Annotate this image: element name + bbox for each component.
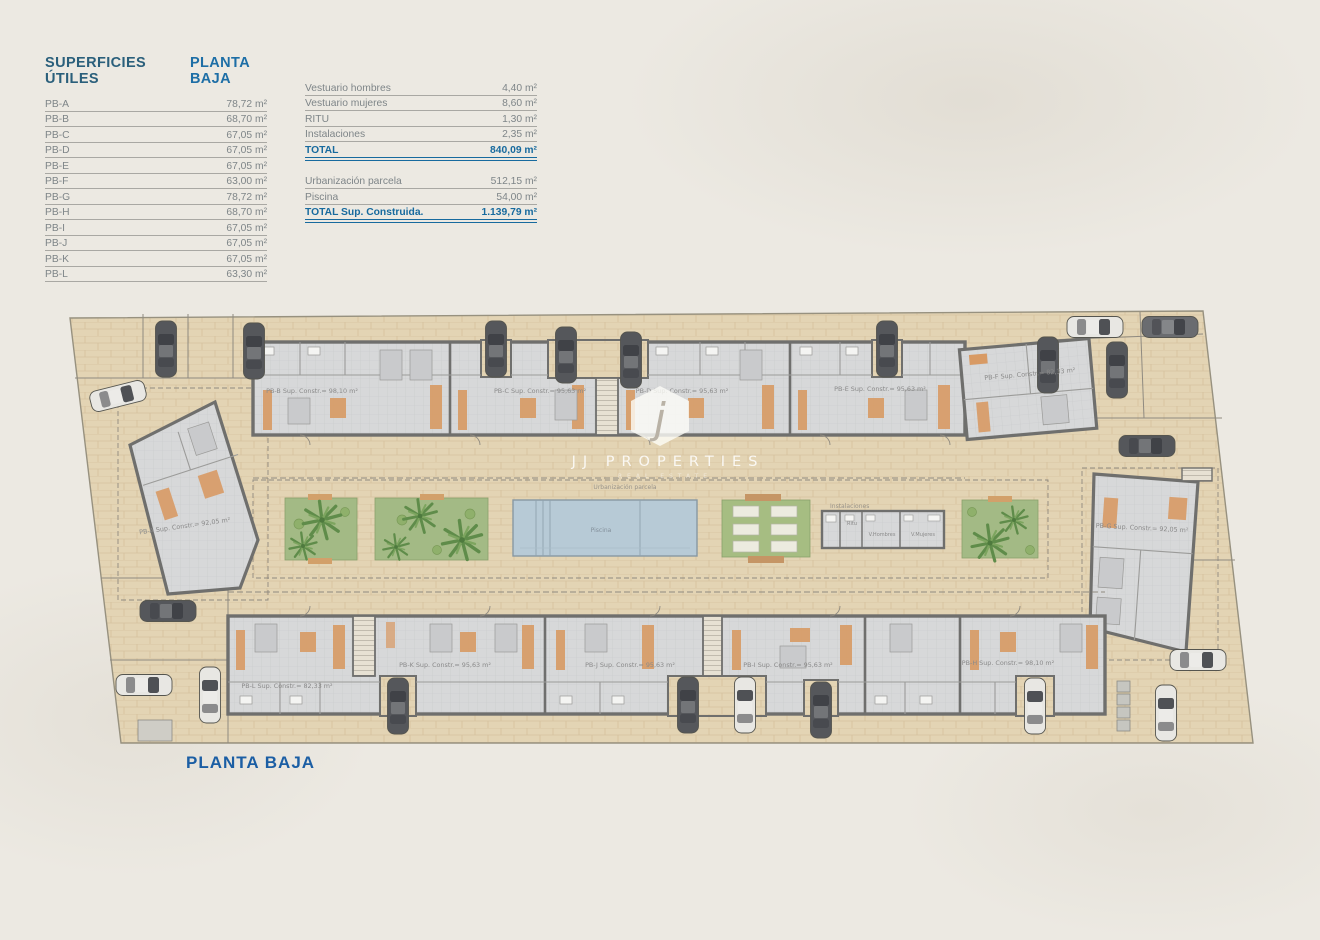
table-row: PB-E67,05 m² <box>45 158 267 174</box>
unit-label-pbh: PB-H Sup. Constr.= 98,10 m² <box>962 659 1055 667</box>
row-label: PB-K <box>45 254 69 265</box>
row-label: PB-E <box>45 161 69 172</box>
unit-label-pbk: PB-K Sup. Constr.= 95,63 m² <box>399 661 491 669</box>
row-label: PB-F <box>45 176 68 187</box>
total-value: 1.139,79 m² <box>481 207 537 218</box>
row-label: Urbanización parcela <box>305 176 402 187</box>
watermark-name: JJ PROPERTIES <box>571 454 765 470</box>
row-value: 67,05 m² <box>226 161 267 172</box>
row-label: Instalaciones <box>305 129 365 140</box>
table-row: PB-B68,70 m² <box>45 112 267 128</box>
table-row: PB-J67,05 m² <box>45 236 267 252</box>
row-value: 67,05 m² <box>226 238 267 249</box>
surfaces-table-title: SUPERFICIES ÚTILES PLANTA BAJA <box>45 55 267 87</box>
table-row: Urbanización parcela512,15 m² <box>305 174 537 190</box>
unit-label-pbj: PB-J Sup. Constr.= 95,63 m² <box>585 661 675 669</box>
row-value: 63,30 m² <box>226 269 267 280</box>
table-row: PB-C67,05 m² <box>45 127 267 143</box>
label-instalaciones: Instalaciones <box>830 503 869 510</box>
table-row: Piscina54,00 m² <box>305 189 537 205</box>
table-row: RITU1,30 m² <box>305 111 537 127</box>
stairs <box>596 378 618 435</box>
row-value: 512,15 m² <box>491 176 537 187</box>
table-row: PB-K67,05 m² <box>45 251 267 267</box>
surfaces-table: SUPERFICIES ÚTILES PLANTA BAJA PB-A78,72… <box>45 55 267 282</box>
table-row: PB-I67,05 m² <box>45 220 267 236</box>
row-value: 8,60 m² <box>502 98 537 109</box>
row-value: 67,05 m² <box>226 223 267 234</box>
solarium <box>722 494 810 563</box>
table-row: PB-D67,05 m² <box>45 143 267 159</box>
row-label: RITU <box>305 114 329 125</box>
facilities-block <box>822 511 944 548</box>
label-ritu: Ritu <box>847 521 857 527</box>
table-row: PB-H68,70 m² <box>45 205 267 221</box>
row-value: 63,00 m² <box>226 176 267 187</box>
total-label: TOTAL Sup. Construida. <box>305 207 423 218</box>
table-row: PB-G78,72 m² <box>45 189 267 205</box>
total-row: TOTAL840,09 m² <box>305 142 537 161</box>
total-label: TOTAL <box>305 145 338 156</box>
row-value: 1,30 m² <box>502 114 537 125</box>
title-superficies-utiles: SUPERFICIES ÚTILES <box>45 55 162 87</box>
row-label: Vestuario hombres <box>305 83 391 94</box>
row-value: 68,70 m² <box>226 114 267 125</box>
table-row: PB-A78,72 m² <box>45 96 267 112</box>
row-label: PB-L <box>45 269 68 280</box>
table-row: Vestuario mujeres8,60 m² <box>305 96 537 112</box>
row-label: PB-D <box>45 145 70 156</box>
row-label: PB-A <box>45 99 69 110</box>
row-label: PB-B <box>45 114 69 125</box>
stairs <box>1182 468 1212 481</box>
row-label: PB-C <box>45 130 70 141</box>
totals-table: Vestuario hombres4,40 m² Vestuario mujer… <box>305 80 537 223</box>
row-label: PB-H <box>45 207 70 218</box>
unit-label-pbi: PB-I Sup. Constr.= 95,63 m² <box>743 661 833 669</box>
table-row: PB-L63,30 m² <box>45 267 267 283</box>
plan-caption: PLANTA BAJA <box>186 753 315 773</box>
row-label: PB-J <box>45 238 67 249</box>
table-row: Instalaciones2,35 m² <box>305 127 537 143</box>
unit-label-pbc: PB-C Sup. Constr.= 95,63 m² <box>494 387 587 395</box>
stairs <box>703 616 722 676</box>
row-label: Piscina <box>305 192 338 203</box>
unit-label-pbe: PB-E Sup. Constr.= 95,63 m² <box>834 385 926 393</box>
row-value: 67,05 m² <box>226 254 267 265</box>
row-value: 67,05 m² <box>226 130 267 141</box>
row-value: 4,40 m² <box>502 83 537 94</box>
row-label: PB-G <box>45 192 70 203</box>
row-value: 2,35 m² <box>502 129 537 140</box>
row-value: 78,72 m² <box>226 192 267 203</box>
label-v-hombres: V.Hombres <box>869 532 896 538</box>
unit-pbf <box>959 339 1096 440</box>
title-planta-baja: PLANTA BAJA <box>190 55 267 87</box>
label-urbanizacion: Urbanización parcela <box>593 484 656 491</box>
row-value: 68,70 m² <box>226 207 267 218</box>
row-label: Vestuario mujeres <box>305 98 387 109</box>
row-value: 54,00 m² <box>496 192 537 203</box>
stairs <box>353 616 375 676</box>
row-value: 78,72 m² <box>226 99 267 110</box>
table-row: Vestuario hombres4,40 m² <box>305 80 537 96</box>
unit-label-pbb: PB-B Sup. Constr.= 98,10 m² <box>266 387 358 395</box>
row-label: PB-I <box>45 223 65 234</box>
row-value: 67,05 m² <box>226 145 267 156</box>
watermark-tagline: REAL ESTATE <box>618 473 712 480</box>
total-value: 840,09 m² <box>490 145 537 156</box>
total-constructed-row: TOTAL Sup. Construida.1.139,79 m² <box>305 205 537 224</box>
label-piscina: Piscina <box>591 527 612 534</box>
label-v-mujeres: V.Mujeres <box>911 532 935 538</box>
storage-slab <box>138 720 172 741</box>
unit-label-pbl: PB-L Sup. Constr.= 82,33 m² <box>241 682 333 690</box>
table-row: PB-F63,00 m² <box>45 174 267 190</box>
